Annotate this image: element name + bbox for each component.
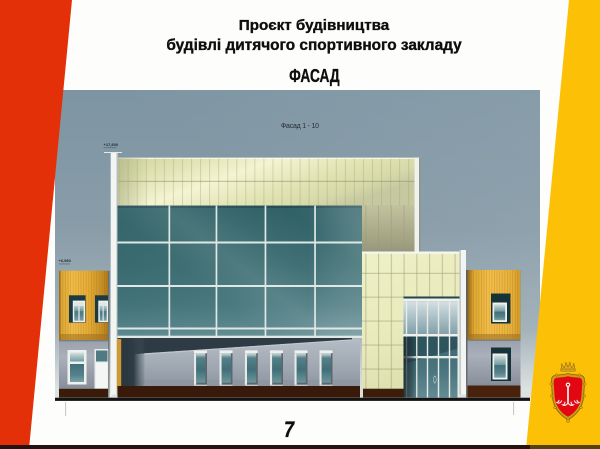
svg-text:Фасад 1 - 10: Фасад 1 - 10 [281,123,319,130]
svg-text:+6,980: +6,980 [59,258,72,263]
svg-text:+17,800: +17,800 [104,142,119,147]
